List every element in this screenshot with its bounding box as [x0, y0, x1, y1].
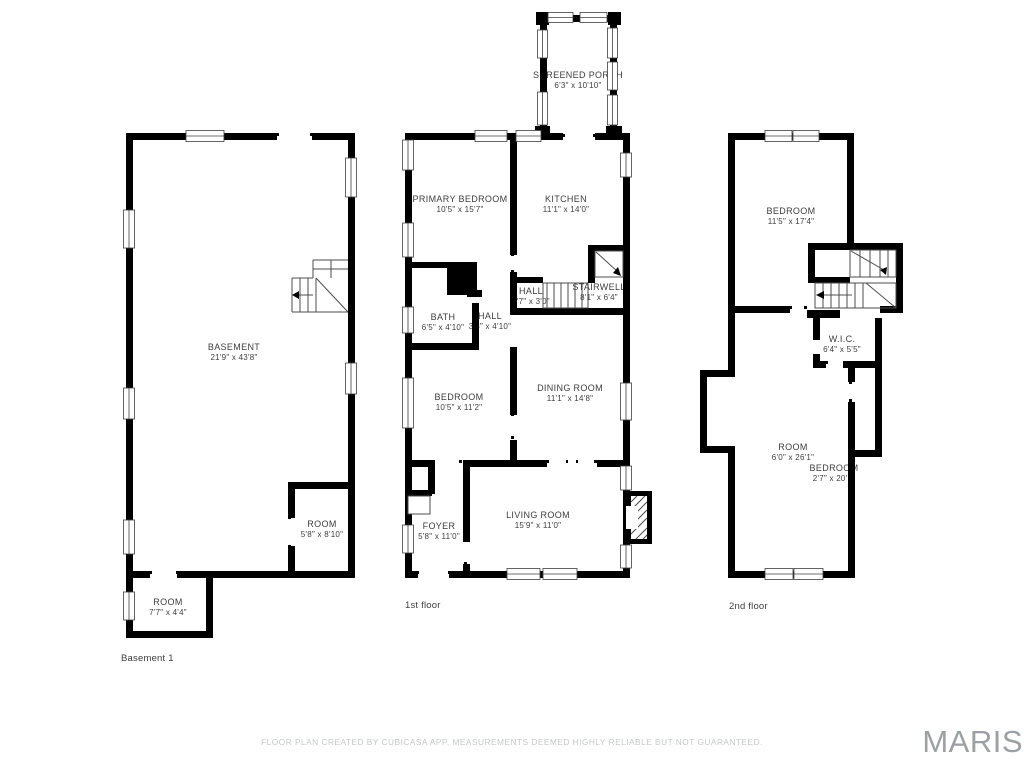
- first-floor-stairs: [543, 251, 623, 308]
- door-jamb-dots: [149, 133, 852, 574]
- disclaimer-text: FLOOR PLAN CREATED BY CUBICASA APP. MEAS…: [261, 737, 763, 747]
- second-floor-geometry: [700, 131, 903, 580]
- maris-logo: MARIS: [922, 724, 1023, 760]
- fireplace: [626, 491, 652, 544]
- floor-plan-page: BASEMENT 21'9" x 43'8" ROOM 5'8" x 8'10"…: [0, 0, 1024, 768]
- basement-stairs: [292, 260, 348, 312]
- first-floor-geometry: [403, 12, 653, 580]
- floor-plan-drawing: [0, 0, 1024, 768]
- basement-geometry: [124, 131, 357, 639]
